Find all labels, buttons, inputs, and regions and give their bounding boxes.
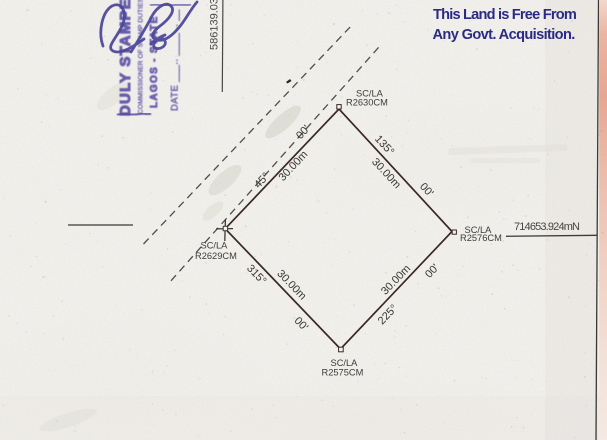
svg-text:This Land is Free From: This Land is Free From (433, 7, 577, 23)
svg-text:COMMISSIONER OF STAMP DUTIES: COMMISSIONER OF STAMP DUTIES (138, 0, 145, 114)
svg-text:R2575CM: R2575CM (322, 368, 364, 378)
svg-text:SC/LA: SC/LA (331, 358, 359, 368)
svg-text:R2576CM: R2576CM (460, 233, 502, 243)
svg-text:SC/LA: SC/LA (201, 241, 229, 251)
svg-text:R2629CM: R2629CM (195, 251, 237, 261)
svg-text:Any Govt. Acquisition.: Any Govt. Acquisition. (433, 27, 576, 43)
svg-text:R2630CM: R2630CM (346, 98, 388, 108)
svg-text:586139.03: 586139.03 (209, 0, 221, 50)
svg-text:714653.924mN: 714653.924mN (514, 221, 580, 233)
svg-text:DATE ___.. ____ .. __: DATE ___.. ____ .. __ (170, 9, 181, 111)
